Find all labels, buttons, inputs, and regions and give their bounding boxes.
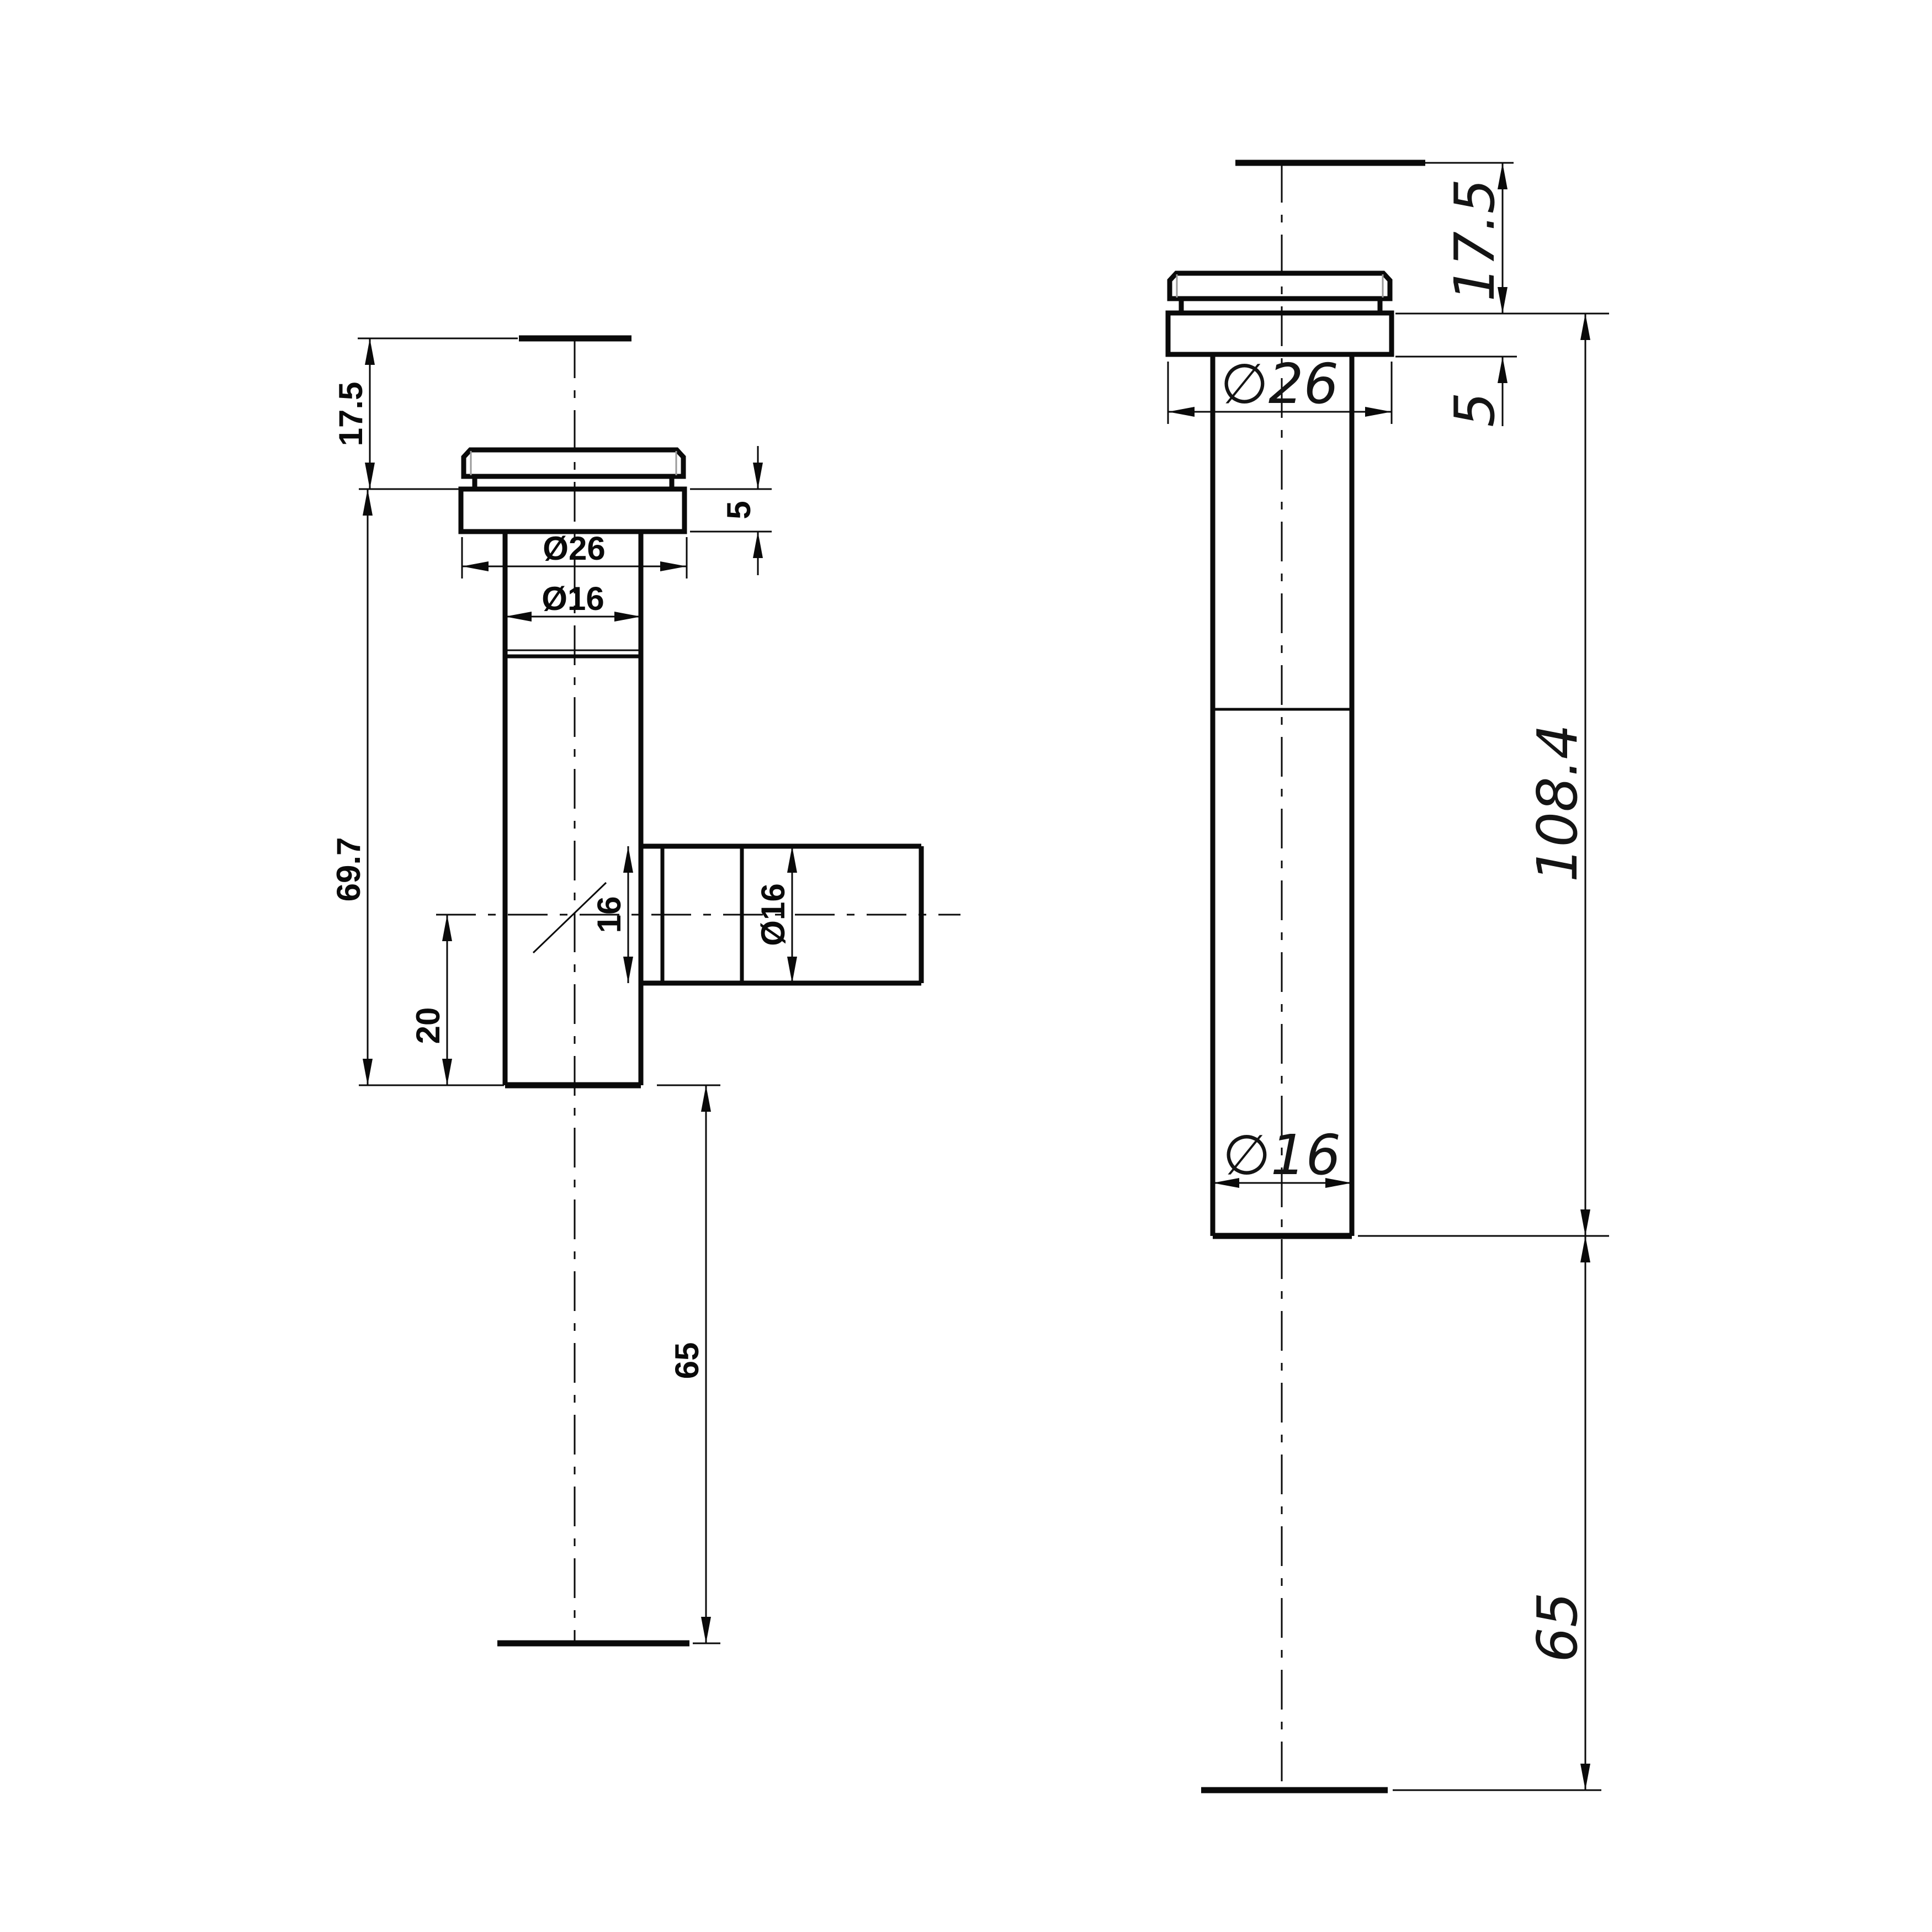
technical-drawing: 17.5 69.7 5 Ø26 Ø16 — [0, 0, 1932, 1932]
dim-left-tube-dia: Ø16 — [505, 580, 641, 622]
left-flange-outline — [461, 489, 684, 532]
arrowhead-down — [365, 463, 375, 489]
arrowhead-down — [623, 957, 633, 983]
arrowhead-down — [1580, 1764, 1590, 1790]
dim-right-overall-height: 108.4 — [1525, 314, 1590, 1236]
arrowhead-down — [753, 463, 763, 489]
arrowhead-right — [1365, 407, 1392, 417]
arrowhead-up — [363, 489, 373, 516]
dim-left-bottom-extension: 65 — [668, 1085, 711, 1643]
dim-label: Ø16 — [542, 580, 604, 617]
dim-label: 65 — [1525, 1592, 1590, 1662]
dim-label: 5 — [720, 501, 757, 519]
dim-right-top-offset: 17.5 — [1442, 163, 1508, 314]
arrowhead-down — [363, 1059, 373, 1085]
arrowhead-right — [660, 561, 687, 571]
arrowhead-right — [614, 612, 641, 622]
arrowhead-left — [1168, 407, 1195, 417]
right-view: 17.5 5 ∅26 108.4 ∅16 — [1168, 163, 1609, 1790]
dim-right-flange-dia: ∅26 — [1168, 352, 1392, 417]
dim-left-branch-offset: 20 — [410, 915, 452, 1085]
arrowhead-up — [753, 532, 763, 558]
dim-left-top-offset: 17.5 — [332, 338, 375, 489]
dim-label: 5 — [1442, 392, 1507, 427]
dim-left-flange-dia: Ø26 — [462, 530, 687, 571]
dim-label: Ø16 — [755, 883, 792, 946]
dim-right-bottom-extension: 65 — [1525, 1236, 1590, 1790]
arrowhead-up — [1580, 1236, 1590, 1262]
dim-label: 17.5 — [1442, 179, 1507, 302]
dim-label: 108.4 — [1525, 724, 1590, 882]
dim-left-flange-thickness: 5 — [720, 446, 763, 575]
dim-left-bore-width: 16 — [591, 846, 633, 983]
dim-label: 17.5 — [332, 382, 369, 447]
arrowhead-left — [505, 612, 532, 622]
dim-right-flange-thickness: 5 — [1442, 357, 1508, 427]
arrowhead-down — [442, 1059, 452, 1085]
arrowhead-up — [442, 915, 452, 941]
dim-label: 69.7 — [330, 837, 367, 902]
dim-label: Ø26 — [543, 530, 605, 567]
dim-label: ∅16 — [1223, 1123, 1341, 1187]
dim-right-tube-dia: ∅16 — [1213, 1123, 1352, 1188]
arrowhead-up — [1580, 314, 1590, 340]
dim-left-body-height: 69.7 — [330, 489, 373, 1085]
arrowhead-left — [462, 561, 489, 571]
left-view: 17.5 69.7 5 Ø26 Ø16 — [330, 338, 960, 1643]
dim-left-branch-dia: Ø16 — [755, 846, 797, 983]
drawing-canvas: 17.5 69.7 5 Ø26 Ø16 — [0, 0, 1932, 1932]
dim-label: 65 — [668, 1342, 705, 1379]
dim-label: 20 — [410, 1007, 447, 1044]
dim-label: 16 — [591, 896, 628, 933]
right-flange-outline — [1168, 313, 1392, 354]
right-cap-outline — [1170, 273, 1390, 299]
arrowhead-up — [623, 846, 633, 873]
arrowhead-up — [365, 338, 375, 365]
left-cap-outline — [464, 450, 683, 476]
arrowhead-down — [787, 957, 797, 983]
arrowhead-up — [701, 1085, 711, 1112]
arrowhead-up — [787, 846, 797, 873]
arrowhead-down — [1580, 1209, 1590, 1236]
dim-label: ∅26 — [1220, 352, 1339, 416]
arrowhead-down — [701, 1617, 711, 1643]
arrowhead-up — [1498, 357, 1508, 383]
